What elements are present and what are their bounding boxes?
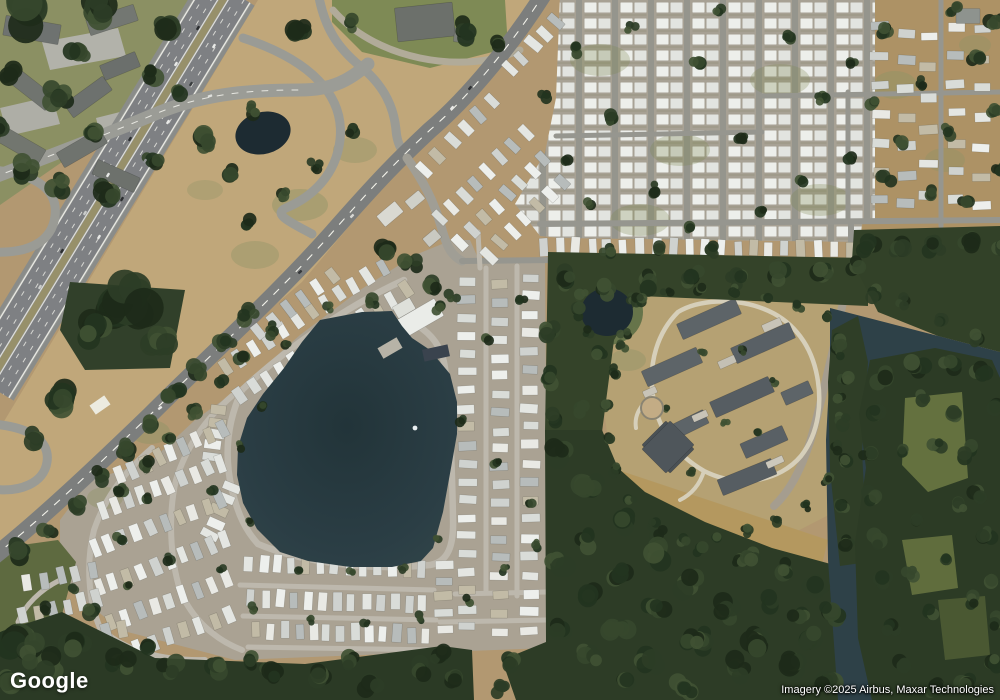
- google-logo[interactable]: Google: [10, 668, 89, 694]
- imagery-attribution: Imagery ©2025 Airbus, Maxar Technologies: [781, 684, 994, 696]
- satellite-map[interactable]: [0, 0, 1000, 700]
- map-viewport: Google Imagery ©2025 Airbus, Maxar Techn…: [0, 0, 1000, 700]
